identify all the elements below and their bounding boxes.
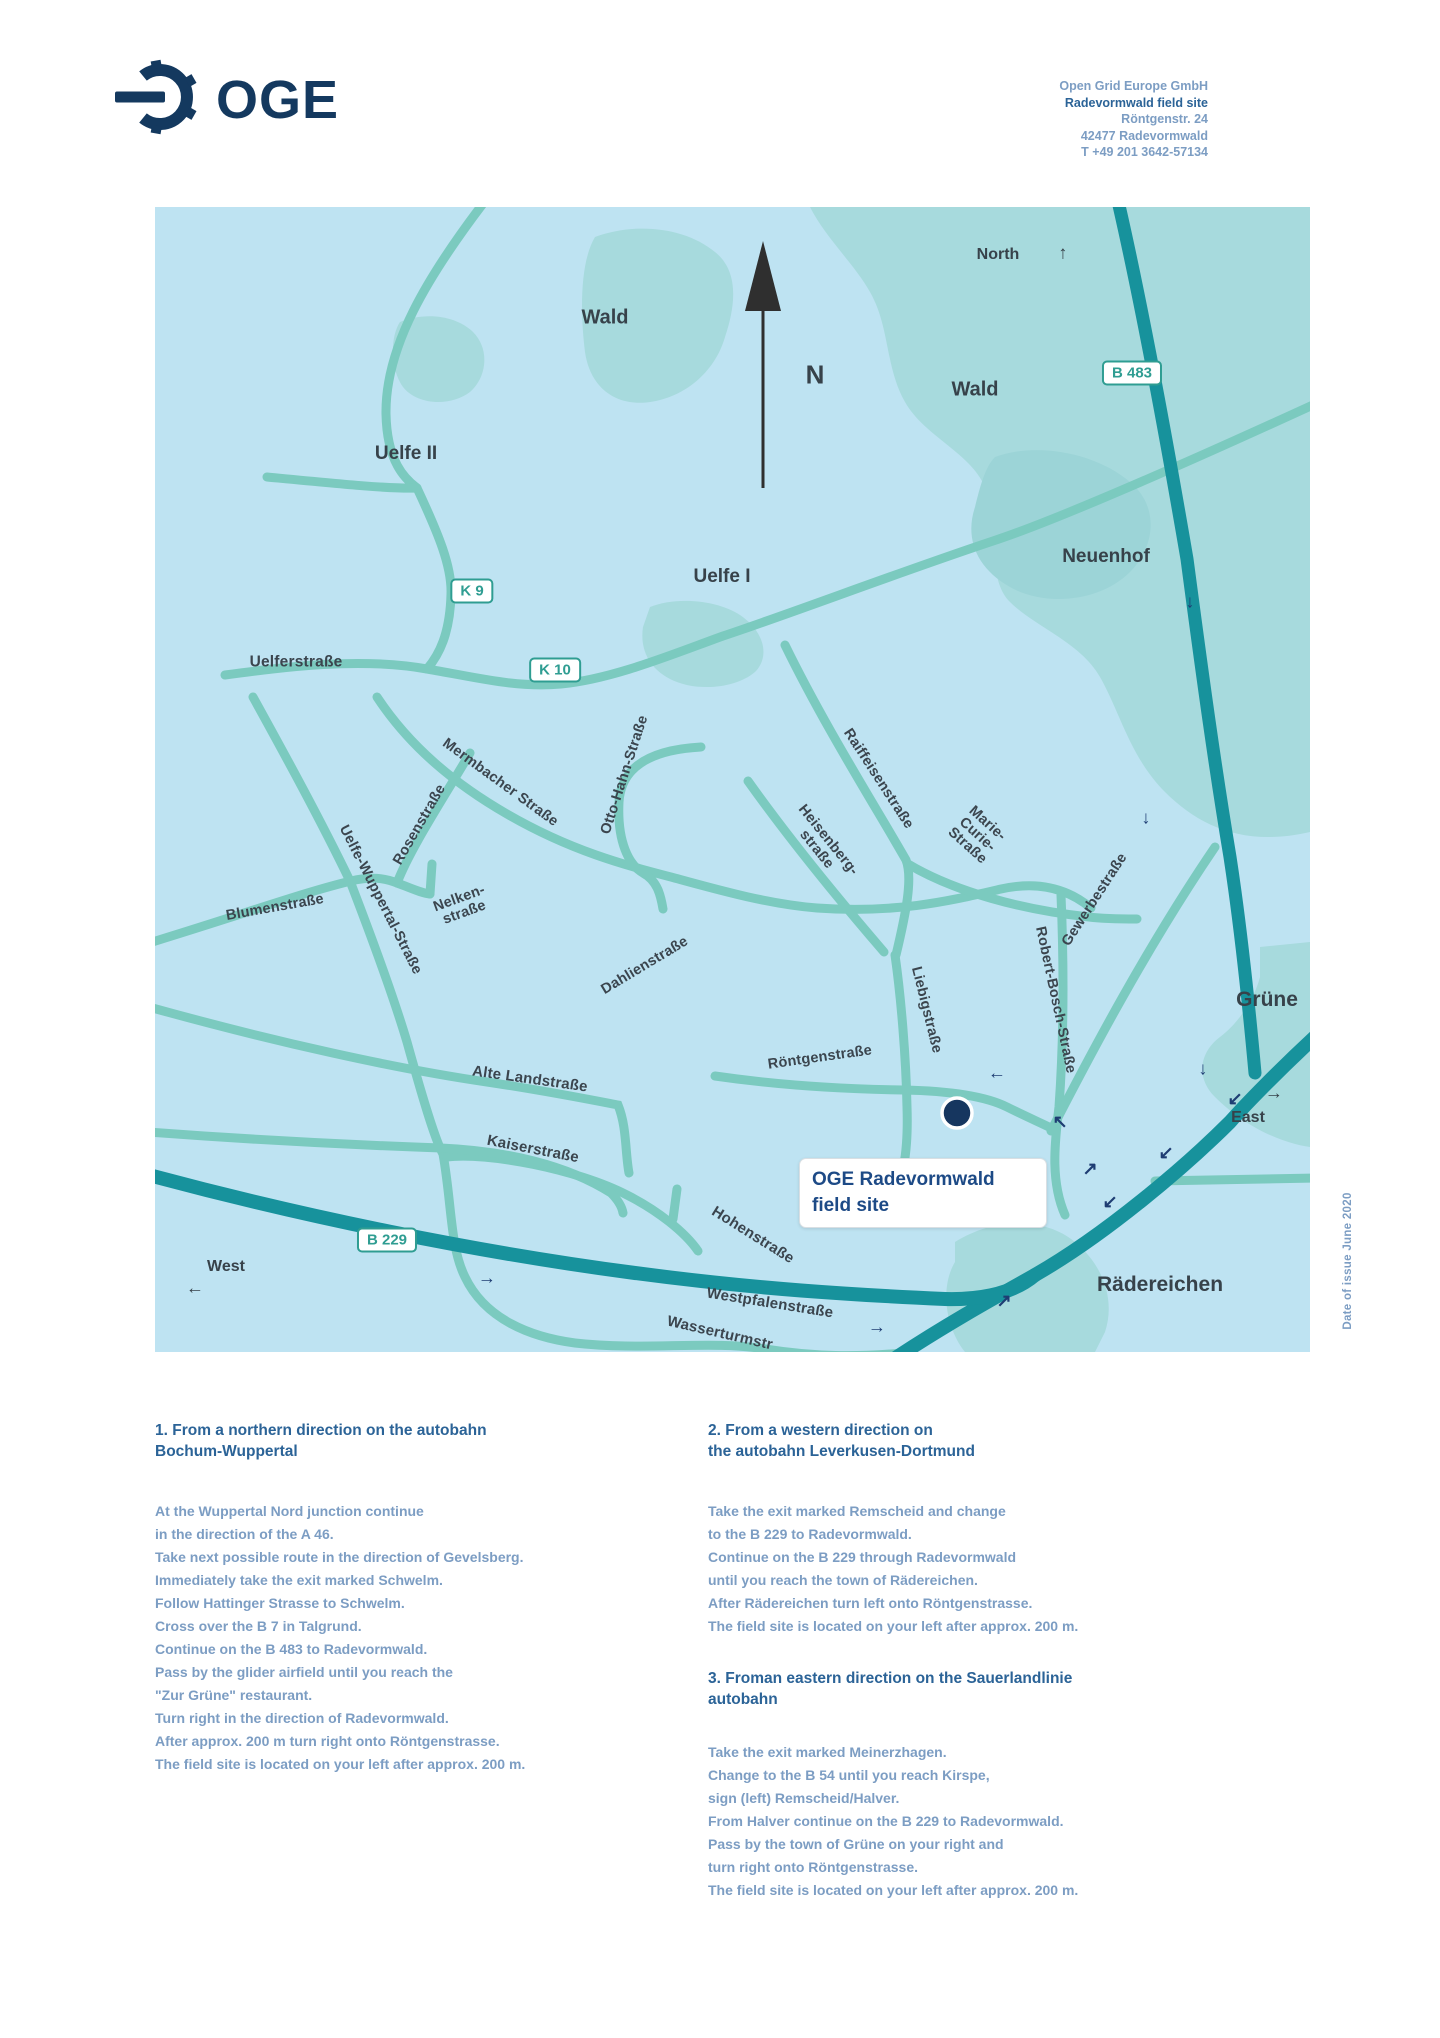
road-nelken-stub: [430, 864, 432, 894]
road-uelfe2: [267, 477, 417, 488]
area-label-raedereichen: Rädereichen: [1097, 1273, 1223, 1297]
direction-line: in the direction of the A 46.: [155, 1523, 685, 1546]
address-block: Open Grid Europe GmbH Radevormwald field…: [1059, 78, 1208, 161]
section-2: 2. From a western direction on the autob…: [708, 1420, 1238, 1638]
section-1-heading: 1. From a northern direction on the auto…: [155, 1420, 685, 1462]
area-label-wald-nw: Wald: [581, 307, 628, 330]
direction-line: Take the exit marked Remscheid and chang…: [708, 1500, 1238, 1523]
west-label: West: [207, 1258, 245, 1276]
direction-line: until you reach the town of Rädereichen.: [708, 1569, 1238, 1592]
direction-line: Take next possible route in the directio…: [155, 1546, 685, 1569]
route-arrow-b483-lower-icon: ↓: [1142, 808, 1151, 829]
direction-line: "Zur Grüne" restaurant.: [155, 1684, 685, 1707]
road-k9: [417, 488, 451, 669]
street-label-uelferstrasse: Uelferstraße: [250, 655, 343, 670]
field-site-callout-line2: field site: [812, 1193, 1034, 1219]
road-gewerbe: [1051, 847, 1215, 1131]
direction-line: Immediately take the exit marked Schwelm…: [155, 1569, 685, 1592]
route-arrow-gruene-icon: ↓: [1199, 1059, 1208, 1080]
section-2-heading-line2: the autobahn Leverkusen-Dortmund: [708, 1441, 1238, 1462]
road-uelfe-wuppertal: [253, 697, 903, 1352]
route-arrow-raedereichen-icon: ↙: [1102, 1192, 1117, 1213]
road-sign-b229: B 229: [357, 1228, 417, 1253]
route-arrow-b229-west-icon: →: [478, 1268, 496, 1289]
field-site-marker: [942, 1098, 972, 1128]
route-arrow-westpfalen-east-icon: ↗: [996, 1291, 1011, 1312]
east-arrow-icon: →: [1265, 1083, 1283, 1104]
route-arrow-robert-bosch-icon: ↖: [1052, 1112, 1067, 1133]
route-arrow-westpfalen-icon: →: [868, 1317, 886, 1338]
compass-n-label: N: [806, 360, 825, 391]
direction-line: Continue on the B 229 through Radevormwa…: [708, 1546, 1238, 1569]
section-1-body: At the Wuppertal Nord junction continue …: [155, 1500, 685, 1776]
route-arrow-b483-icon: ↓: [1186, 592, 1195, 613]
section-2-body: Take the exit marked Remscheid and chang…: [708, 1500, 1238, 1638]
direction-line: The field site is located on your left a…: [708, 1879, 1238, 1902]
address-site: Radevormwald field site: [1059, 95, 1208, 112]
direction-line: Continue on the B 483 to Radevormwald.: [155, 1638, 685, 1661]
field-site-callout: OGE Radevormwald field site: [799, 1158, 1047, 1228]
section-1: 1. From a northern direction on the auto…: [155, 1420, 685, 1776]
area-label-uelfe2: Uelfe II: [375, 443, 437, 465]
road-liebig: [895, 955, 907, 1169]
site-map: N North ↑ East → West ← Wald Wald Uelfe …: [155, 207, 1310, 1352]
section-3-heading-line1: 3. Froman eastern direction on the Sauer…: [708, 1668, 1238, 1689]
direction-line: to the B 229 to Radevormwald.: [708, 1523, 1238, 1546]
direction-line: From Halver continue on the B 229 to Rad…: [708, 1810, 1238, 1833]
oge-logo: OGE: [112, 58, 339, 141]
date-of-issue-note: Date of issue June 2020: [1342, 1176, 1354, 1346]
road-mermbacher-dahlien: [377, 697, 1091, 909]
direction-line: sign (left) Remscheid/Halver.: [708, 1787, 1238, 1810]
direction-line: At the Wuppertal Nord junction continue: [155, 1500, 685, 1523]
direction-line: After approx. 200 m turn right onto Rönt…: [155, 1730, 685, 1753]
direction-line: Pass by the glider airfield until you re…: [155, 1661, 685, 1684]
direction-line: The field site is located on your left a…: [155, 1753, 685, 1776]
section-2-heading-line1: 2. From a western direction on: [708, 1420, 1238, 1441]
east-label: East: [1231, 1109, 1265, 1127]
section-1-heading-line1: 1. From a northern direction on the auto…: [155, 1420, 685, 1441]
west-arrow-icon: ←: [186, 1278, 204, 1299]
address-company: Open Grid Europe GmbH: [1059, 78, 1208, 95]
area-label-wald-ne: Wald: [951, 379, 998, 402]
direction-line: Cross over the B 7 in Talgrund.: [155, 1615, 685, 1638]
road-sign-k9: K 9: [450, 579, 493, 604]
road-sign-b483: B 483: [1102, 361, 1162, 386]
road-sign-k10: K 10: [529, 658, 581, 683]
section-3-heading-line2: autobahn: [708, 1689, 1238, 1710]
section-3: 3. Froman eastern direction on the Sauer…: [708, 1668, 1238, 1902]
oge-logo-text: OGE: [216, 61, 339, 139]
area-label-gruene: Grüne: [1236, 988, 1298, 1012]
section-1-heading-line2: Bochum-Wuppertal: [155, 1441, 685, 1462]
route-arrow-b229-mid-icon: ↙: [1158, 1143, 1173, 1164]
compass-north-arrow: [745, 241, 781, 488]
road-roentgen: [715, 1076, 1051, 1128]
north-arrow-icon: ↑: [1059, 243, 1068, 264]
direction-line: Follow Hattinger Strasse to Schwelm.: [155, 1592, 685, 1615]
section-3-heading: 3. Froman eastern direction on the Sauer…: [708, 1668, 1238, 1710]
address-city: 42477 Radevormwald: [1059, 128, 1208, 145]
field-site-callout-line1: OGE Radevormwald: [812, 1167, 1034, 1193]
route-arrow-roentgen-icon: ←: [988, 1063, 1006, 1084]
section-3-body: Take the exit marked Meinerzhagen. Chang…: [708, 1741, 1238, 1902]
road-heisenberg: [748, 781, 884, 952]
address-phone: T +49 201 3642-57134: [1059, 144, 1208, 161]
address-street: Röntgenstr. 24: [1059, 111, 1208, 128]
area-label-neuenhof: Neuenhof: [1062, 546, 1150, 568]
area-label-uelfe1: Uelfe I: [693, 566, 750, 588]
route-arrow-junction-up-icon: ↗: [1082, 1159, 1097, 1180]
direction-line: Take the exit marked Meinerzhagen.: [708, 1741, 1238, 1764]
direction-line: The field site is located on your left a…: [708, 1615, 1238, 1638]
direction-line: Pass by the town of Grüne on your right …: [708, 1833, 1238, 1856]
direction-line: turn right onto Röntgenstrasse.: [708, 1856, 1238, 1879]
north-label: North: [977, 246, 1020, 264]
road-hohen-stub: [673, 1189, 677, 1219]
section-2-heading: 2. From a western direction on the autob…: [708, 1420, 1238, 1462]
oge-logo-icon: [112, 58, 204, 141]
direction-line: Turn right in the direction of Radevormw…: [155, 1707, 685, 1730]
direction-line: Change to the B 54 until you reach Kirsp…: [708, 1764, 1238, 1787]
route-arrow-b229-east-icon: ↙: [1227, 1089, 1242, 1110]
direction-line: After Rädereichen turn left onto Röntgen…: [708, 1592, 1238, 1615]
